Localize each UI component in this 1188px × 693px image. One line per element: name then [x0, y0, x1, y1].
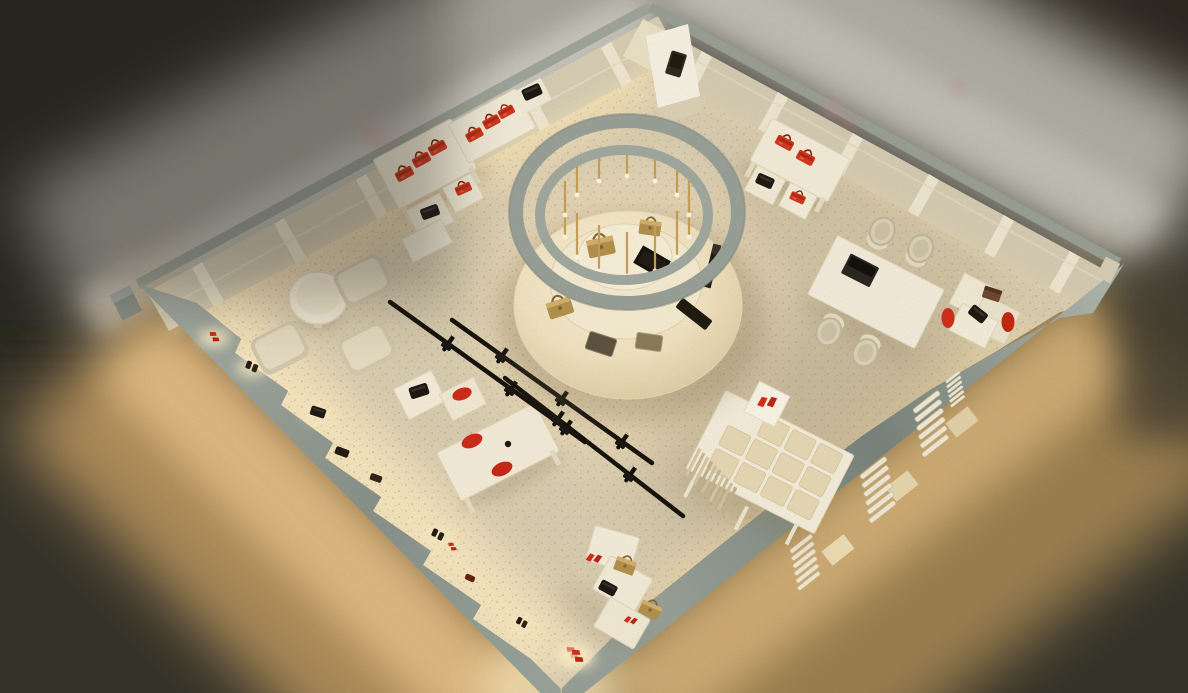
vignette-top-left [0, 0, 450, 300]
scene-canvas [0, 0, 1188, 693]
boutique-render [0, 0, 1188, 693]
